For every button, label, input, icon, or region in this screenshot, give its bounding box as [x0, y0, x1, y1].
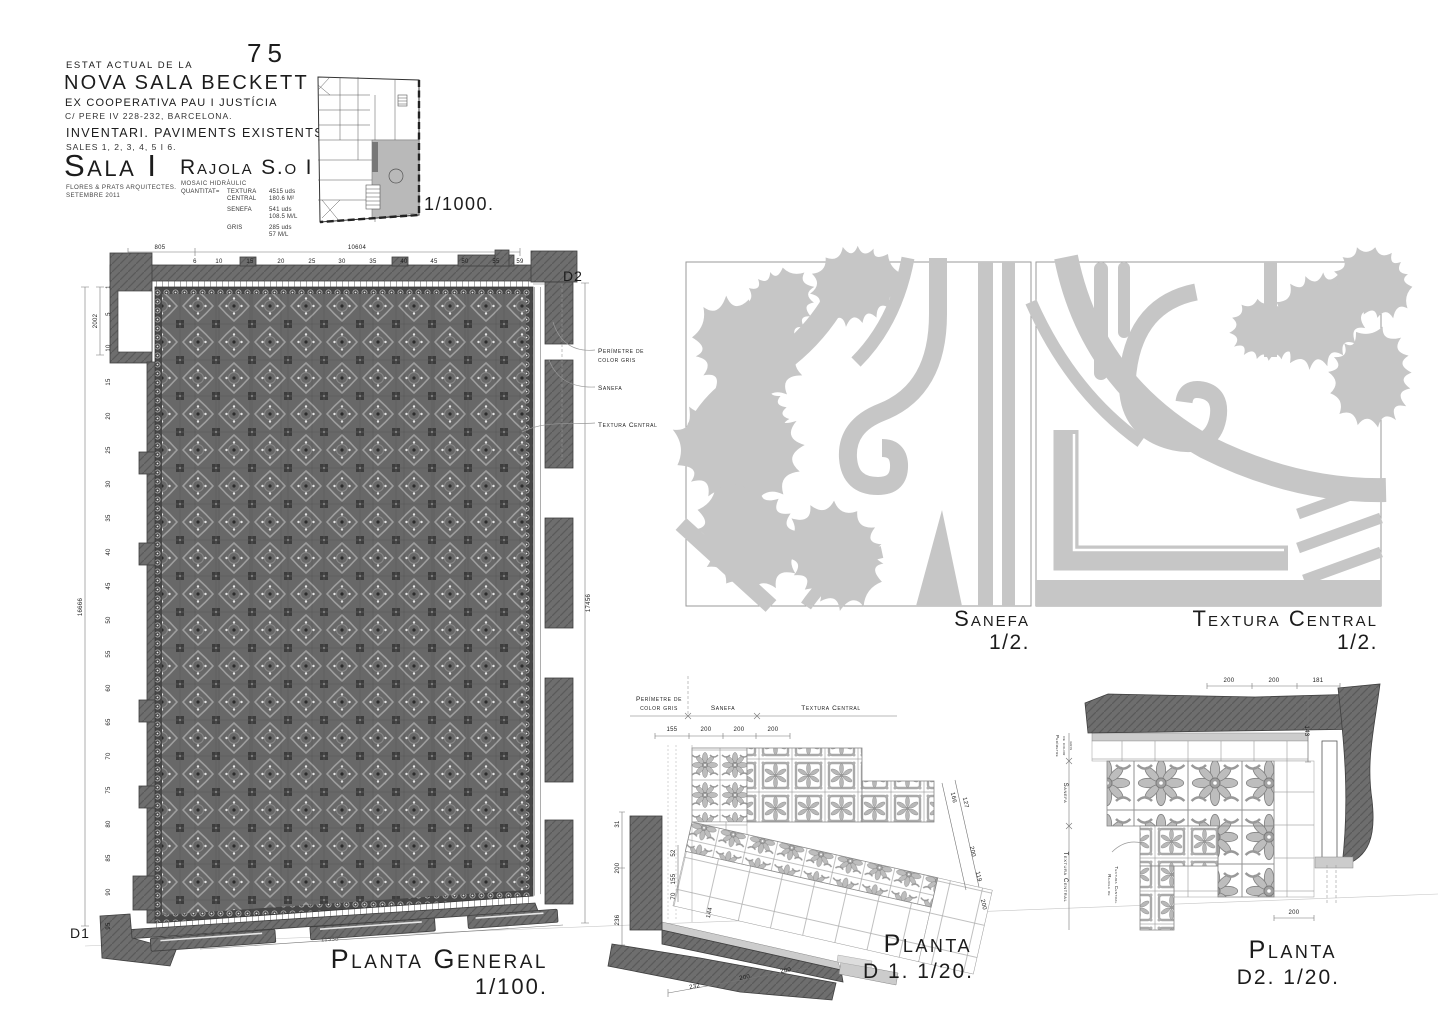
svg-text:200: 200 — [1289, 910, 1300, 916]
detail-textura-label: Textura Central — [1128, 606, 1378, 632]
svg-text:6: 6 — [193, 259, 197, 265]
detail-textura-scale: 1/2. — [1278, 631, 1378, 655]
svg-text:200: 200 — [1224, 678, 1235, 684]
door-opening — [118, 291, 152, 352]
svg-text:35: 35 — [369, 259, 377, 265]
svg-text:15: 15 — [106, 378, 112, 386]
svg-text:181: 181 — [1313, 678, 1324, 684]
svg-text:45: 45 — [430, 259, 438, 265]
svg-text:155: 155 — [667, 727, 678, 733]
marker-d2: D2 — [563, 268, 583, 284]
svg-text:119: 119 — [974, 871, 982, 883]
detail-sanefa-label: Sanefa — [830, 606, 1030, 632]
detail-textura-panel — [1036, 262, 1381, 606]
svg-text:Perímetre: Perímetre — [1055, 735, 1060, 757]
svg-text:166: 166 — [949, 792, 957, 804]
d1-top-dims: 155 200 200 200 — [667, 727, 779, 733]
svg-text:70: 70 — [106, 752, 112, 760]
svg-text:85: 85 — [106, 854, 112, 862]
svg-text:Textura Central: Textura Central — [1114, 866, 1119, 903]
svg-text:Sanefa: Sanefa — [1062, 783, 1068, 804]
svg-text:50: 50 — [461, 259, 469, 265]
d2-note: Rajola de Textura Central — [1107, 866, 1119, 903]
svg-text:200: 200 — [968, 846, 976, 858]
tile-field — [155, 287, 533, 923]
planta-general-scale: 1/100. — [380, 974, 548, 1000]
svg-text:144: 144 — [706, 906, 714, 918]
svg-text:143: 143 — [1303, 726, 1309, 737]
svg-text:805: 805 — [155, 245, 166, 251]
svg-text:10604: 10604 — [348, 245, 367, 251]
svg-text:Rajola de: Rajola de — [1107, 874, 1112, 896]
svg-text:35: 35 — [106, 514, 112, 522]
svg-text:40: 40 — [400, 259, 408, 265]
planta-d2-scale: D2. 1/20. — [1180, 966, 1340, 990]
svg-text:gris: gris — [1069, 742, 1074, 751]
svg-text:1: 1 — [106, 285, 112, 289]
svg-text:200: 200 — [615, 862, 621, 873]
d1-headers: Perímetre de color gris Sanefa Textura C… — [636, 696, 861, 712]
planta-d2-label: Planta — [1187, 936, 1337, 965]
d2-dash-column — [1327, 865, 1336, 905]
svg-text:55: 55 — [106, 650, 112, 658]
svg-text:200: 200 — [734, 727, 745, 733]
d2-tiles — [1092, 733, 1314, 930]
svg-text:Sanefa: Sanefa — [711, 705, 735, 712]
planta-general-label: Planta General — [280, 944, 548, 975]
svg-text:200: 200 — [768, 727, 779, 733]
planta-d1-label: Planta — [822, 930, 972, 959]
svg-text:Sanefa: Sanefa — [598, 385, 622, 392]
d1-top-dims-line — [655, 733, 790, 739]
svg-text:59: 59 — [516, 259, 524, 265]
svg-text:2002: 2002 — [93, 313, 99, 328]
svg-text:Textura Central: Textura Central — [1062, 852, 1068, 903]
svg-text:color gris: color gris — [640, 705, 678, 712]
svg-text:200: 200 — [780, 967, 792, 975]
planta-d1-scale: D 1. 1/20. — [802, 960, 974, 984]
svg-text:20: 20 — [106, 412, 112, 420]
svg-text:15: 15 — [246, 259, 254, 265]
svg-text:60: 60 — [106, 684, 112, 692]
svg-text:80: 80 — [106, 820, 112, 828]
svg-text:75: 75 — [106, 786, 112, 794]
svg-text:17456: 17456 — [586, 594, 592, 613]
detail-sanefa-panel — [686, 262, 1031, 606]
svg-text:232: 232 — [689, 983, 701, 991]
svg-text:50: 50 — [106, 616, 112, 624]
svg-text:55: 55 — [492, 259, 500, 265]
svg-text:30: 30 — [338, 259, 346, 265]
d2-side-labels-2: Sanefa Textura Central — [1062, 783, 1068, 903]
svg-text:95: 95 — [106, 922, 112, 930]
svg-text:Textura Central: Textura Central — [801, 705, 860, 712]
svg-text:45: 45 — [106, 582, 112, 590]
annotations: Perímetre de color gris Sanefa Textura C… — [598, 348, 657, 429]
svg-text:5: 5 — [106, 312, 112, 316]
svg-text:155: 155 — [671, 873, 677, 884]
svg-text:200: 200 — [1269, 678, 1280, 684]
d2-note-leader — [1112, 842, 1142, 852]
svg-text:de color: de color — [1062, 736, 1067, 756]
svg-text:65: 65 — [106, 718, 112, 726]
d2-side-labels: Perímetre de color gris — [1055, 735, 1074, 757]
svg-text:236: 236 — [615, 914, 621, 925]
svg-text:70: 70 — [671, 892, 677, 900]
svg-text:90: 90 — [106, 888, 112, 896]
svg-text:10: 10 — [215, 259, 223, 265]
svg-text:30: 30 — [106, 480, 112, 488]
svg-text:Perímetre de: Perímetre de — [636, 696, 682, 703]
svg-text:16666: 16666 — [78, 598, 84, 617]
d1-header-line — [630, 713, 897, 719]
svg-text:20: 20 — [277, 259, 285, 265]
svg-text:color gris: color gris — [598, 357, 636, 364]
svg-text:10: 10 — [106, 344, 112, 352]
svg-text:Perímetre de: Perímetre de — [598, 348, 644, 355]
svg-text:25: 25 — [106, 446, 112, 454]
drawing-sheet: 75 ESTAT ACTUAL DE LA NOVA SALA BECKETT … — [0, 0, 1440, 1018]
svg-text:25: 25 — [308, 259, 316, 265]
svg-text:40: 40 — [106, 548, 112, 556]
svg-text:Textura Central: Textura Central — [598, 422, 657, 429]
marker-d1: D1 — [70, 925, 90, 941]
detail-sanefa-scale: 1/2. — [930, 631, 1030, 655]
svg-text:127: 127 — [961, 797, 969, 809]
svg-text:31: 31 — [615, 820, 621, 828]
svg-text:200: 200 — [701, 727, 712, 733]
svg-text:52: 52 — [671, 849, 677, 857]
bottom-dim: 11338 — [321, 936, 339, 943]
